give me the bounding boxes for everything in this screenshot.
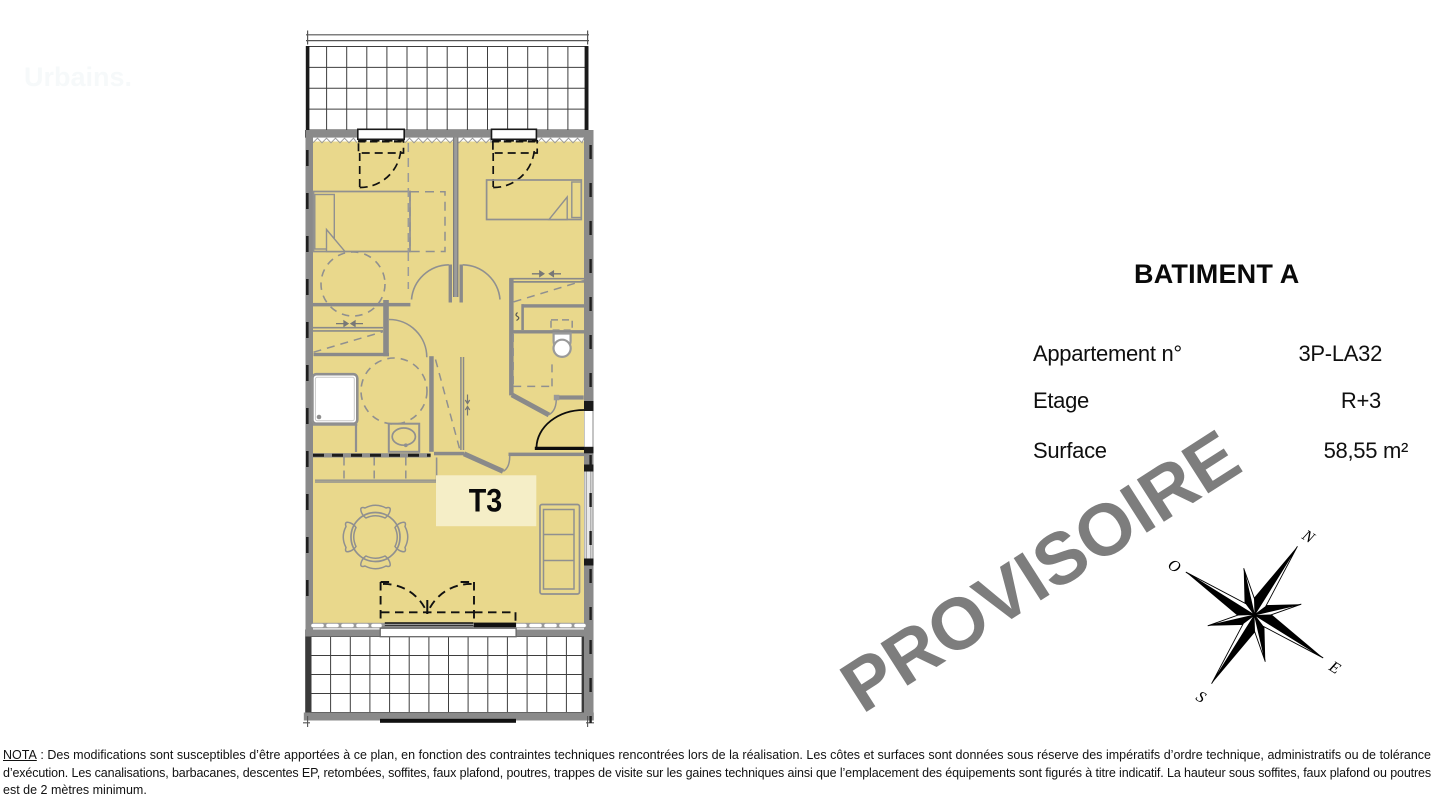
svg-text:S: S bbox=[1193, 688, 1209, 707]
svg-text:N: N bbox=[1298, 526, 1318, 547]
svg-text:O: O bbox=[1165, 556, 1184, 577]
svg-text:E: E bbox=[1325, 658, 1343, 678]
svg-text:T3: T3 bbox=[469, 483, 503, 519]
